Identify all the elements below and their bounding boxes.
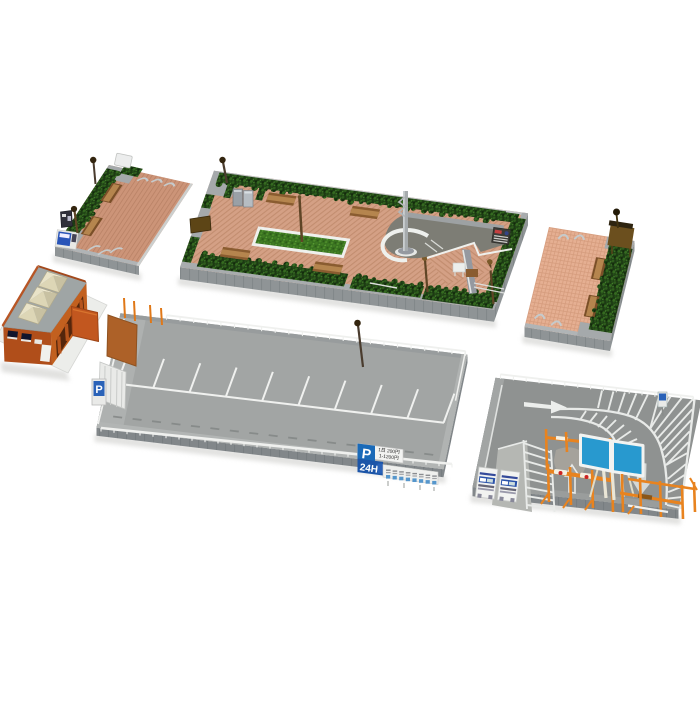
svg-text:P: P [95, 384, 102, 396]
